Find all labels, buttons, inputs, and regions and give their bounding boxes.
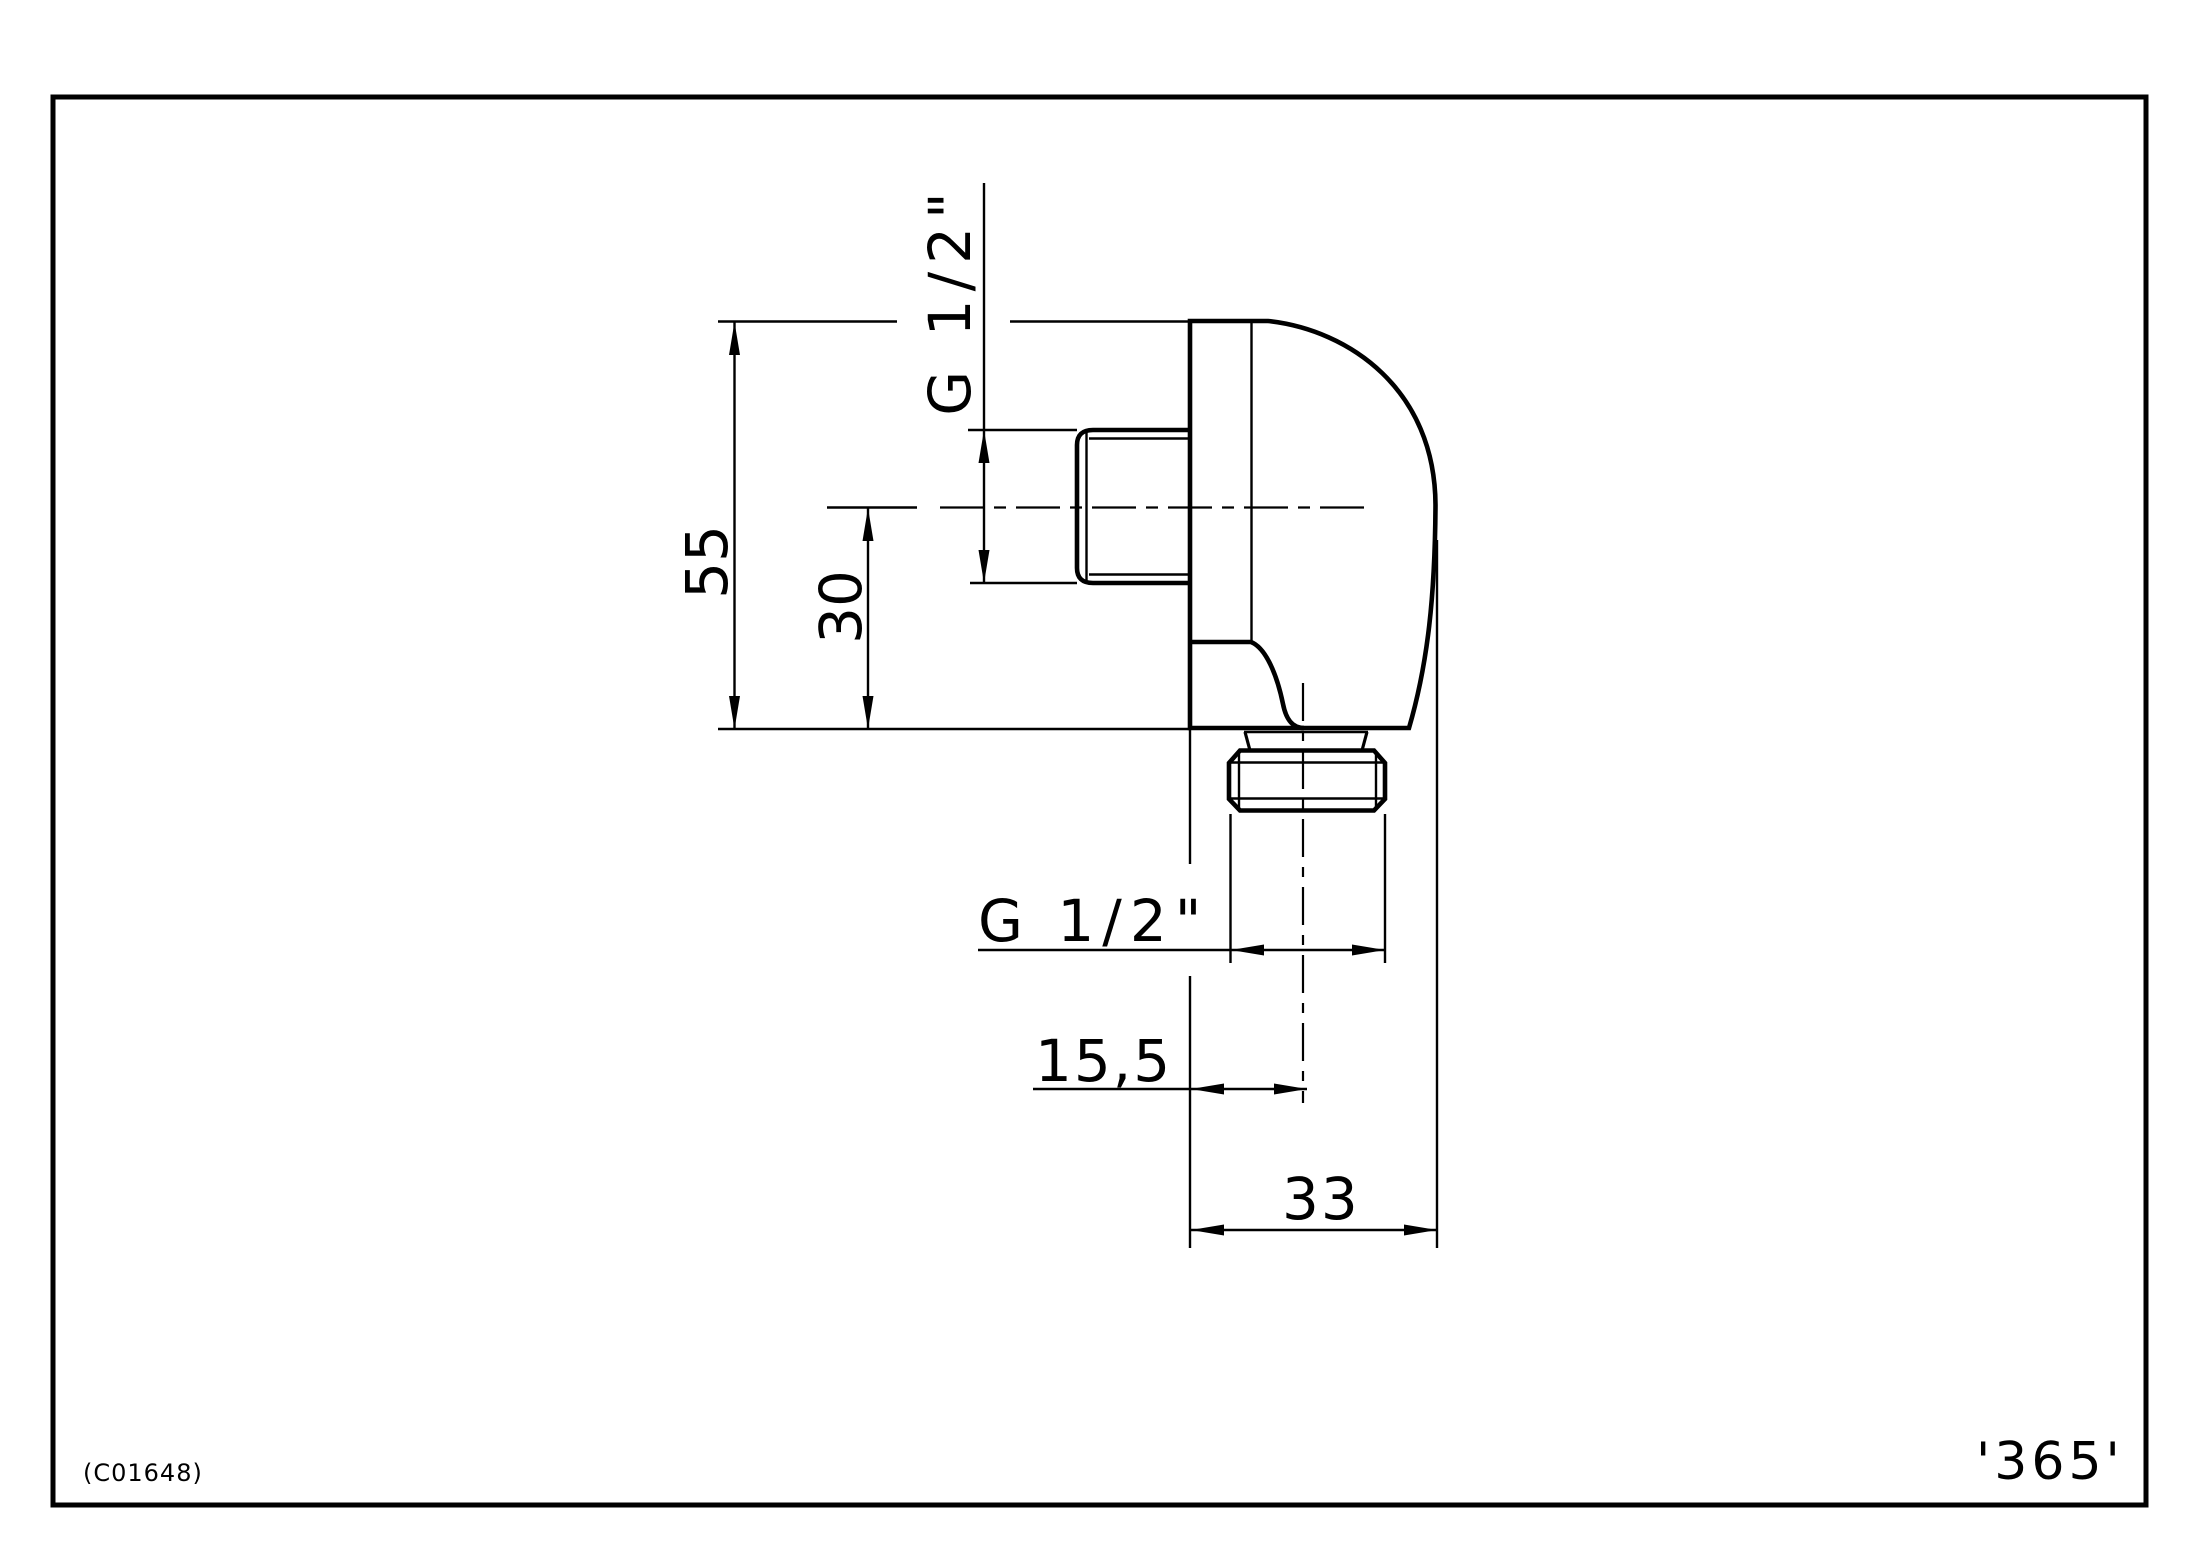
part-outline	[1077, 321, 1436, 811]
arrow-side-thread-bottom	[979, 550, 990, 583]
dim-label-33: 33	[1282, 1165, 1360, 1233]
arrow-side-thread-top	[979, 430, 990, 463]
doc-code-label: (C01648)	[83, 1459, 203, 1487]
sheet-border	[53, 97, 2146, 1505]
arrow-bottom-thread-right	[1352, 945, 1385, 956]
arrow-30-top	[863, 508, 874, 541]
dimension-labels: 55 30 G 1/2" G 1/2" 15,5 33	[673, 184, 1360, 1233]
dim-label-bottom-thread: G 1/2"	[978, 887, 1209, 955]
flange-step	[1190, 642, 1304, 728]
technical-drawing-canvas: 55 30 G 1/2" G 1/2" 15,5 33 (C01648) '36…	[0, 0, 2200, 1558]
arrow-15-5-left	[1191, 1084, 1224, 1095]
arrow-30-bottom	[863, 696, 874, 729]
neck-side-right	[1362, 732, 1367, 751]
arrow-33-right	[1404, 1225, 1437, 1236]
arrow-33-left	[1191, 1225, 1224, 1236]
neck-side-left	[1245, 732, 1250, 751]
dim-label-30: 30	[807, 570, 875, 644]
arrow-bottom-thread-left	[1231, 945, 1264, 956]
dim-label-55: 55	[673, 525, 741, 599]
dimension-arrows	[729, 322, 1437, 1236]
arrow-55-top	[729, 322, 740, 355]
dim-label-side-thread: G 1/2"	[916, 184, 984, 415]
centerlines	[940, 508, 1367, 1104]
dim-label-15-5: 15,5	[1035, 1027, 1172, 1095]
bottom-nut	[1229, 751, 1385, 811]
page-number-label: '365'	[1976, 1432, 2124, 1492]
drawing-page: 55 30 G 1/2" G 1/2" 15,5 33 (C01648) '36…	[0, 0, 2200, 1558]
arrow-55-bottom	[729, 696, 740, 729]
body-profile	[1190, 321, 1436, 728]
part-detail-lines	[1087, 321, 1386, 810]
